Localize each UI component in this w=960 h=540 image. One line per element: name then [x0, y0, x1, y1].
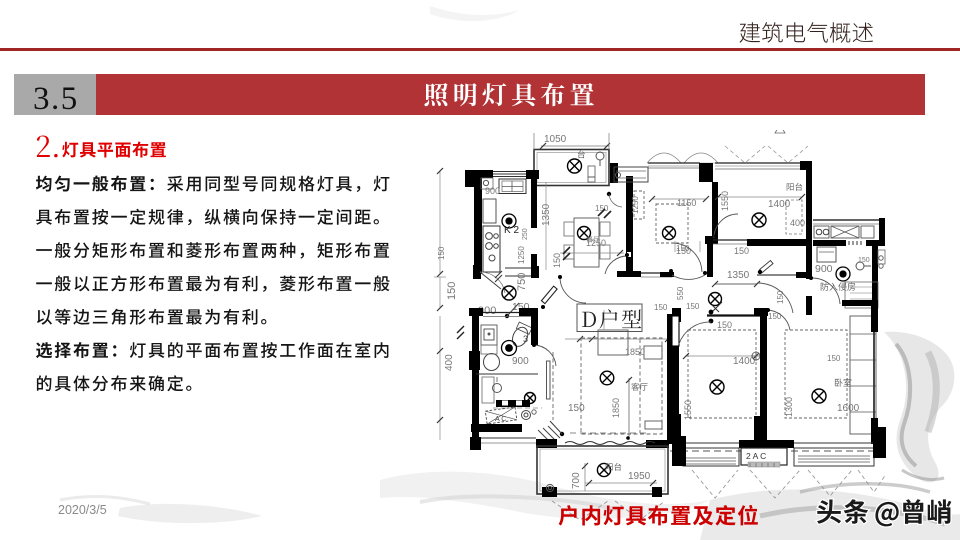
svg-text:400: 400 [444, 354, 455, 371]
svg-text:1600: 1600 [837, 403, 860, 414]
svg-text:400: 400 [790, 218, 805, 228]
svg-text:A C: A C [495, 416, 506, 423]
svg-text:550: 550 [676, 286, 685, 300]
svg-text:1250: 1250 [517, 246, 526, 264]
svg-text:1350: 1350 [727, 270, 750, 281]
svg-text:900: 900 [815, 263, 833, 275]
svg-text:K 2: K 2 [504, 225, 519, 236]
svg-text:150: 150 [446, 282, 458, 300]
svg-text:1350: 1350 [541, 203, 552, 226]
svg-text:1550: 1550 [720, 191, 730, 211]
svg-text:150: 150 [568, 403, 585, 414]
svg-text:250: 250 [522, 228, 529, 240]
svg-text:1400: 1400 [768, 199, 791, 210]
svg-text:900: 900 [485, 186, 500, 196]
svg-text:150: 150 [768, 312, 782, 321]
svg-text:150: 150 [686, 302, 700, 311]
svg-text:1300: 1300 [784, 397, 794, 417]
svg-text:2 A C: 2 A C [746, 451, 766, 461]
svg-text:150: 150 [717, 320, 732, 330]
svg-text:150: 150 [734, 246, 749, 256]
svg-text:1550: 1550 [683, 400, 693, 420]
svg-text:1850: 1850 [625, 347, 645, 357]
svg-text:1250: 1250 [631, 196, 640, 214]
svg-text:150: 150 [827, 354, 841, 363]
svg-text:150: 150 [654, 303, 668, 312]
svg-text:1050: 1050 [544, 134, 567, 145]
svg-text:900: 900 [512, 356, 529, 367]
svg-text:1850: 1850 [611, 398, 621, 418]
svg-text:750: 750 [516, 273, 528, 291]
svg-text:150: 150 [437, 246, 446, 260]
svg-text:150: 150 [858, 257, 870, 264]
svg-text:150: 150 [776, 290, 785, 304]
svg-text:150: 150 [552, 253, 562, 268]
svg-text:3: 3 [523, 334, 528, 344]
svg-text:1150: 1150 [677, 198, 696, 208]
svg-text:150: 150 [676, 246, 691, 256]
